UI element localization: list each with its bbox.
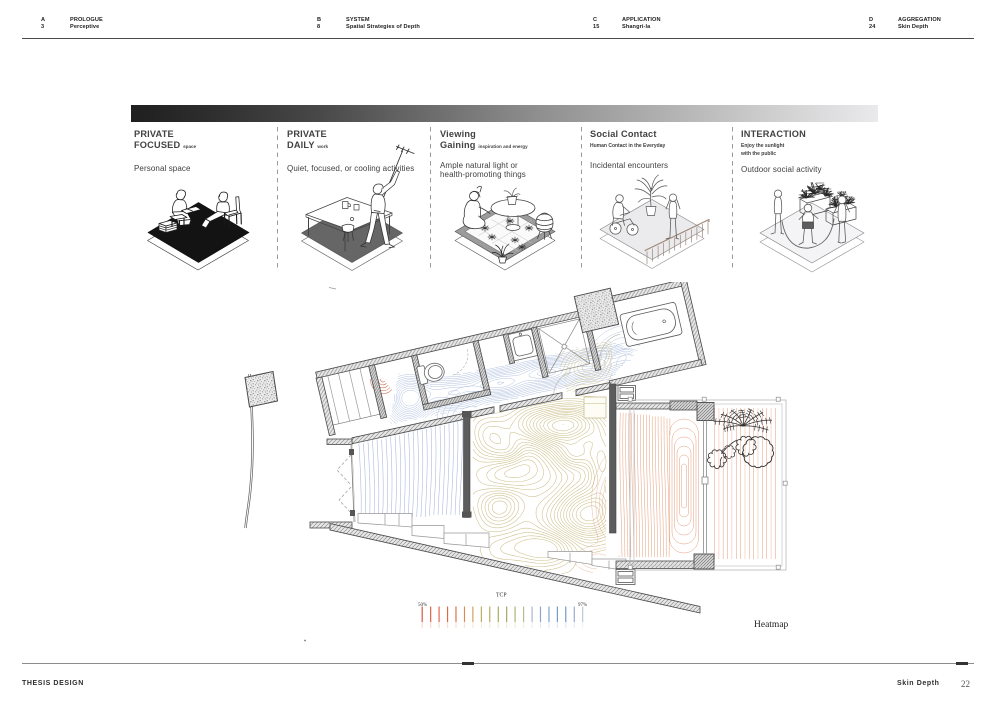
- svg-text:Heatmap: Heatmap: [754, 620, 789, 630]
- svg-text:TCP: TCP: [496, 593, 507, 599]
